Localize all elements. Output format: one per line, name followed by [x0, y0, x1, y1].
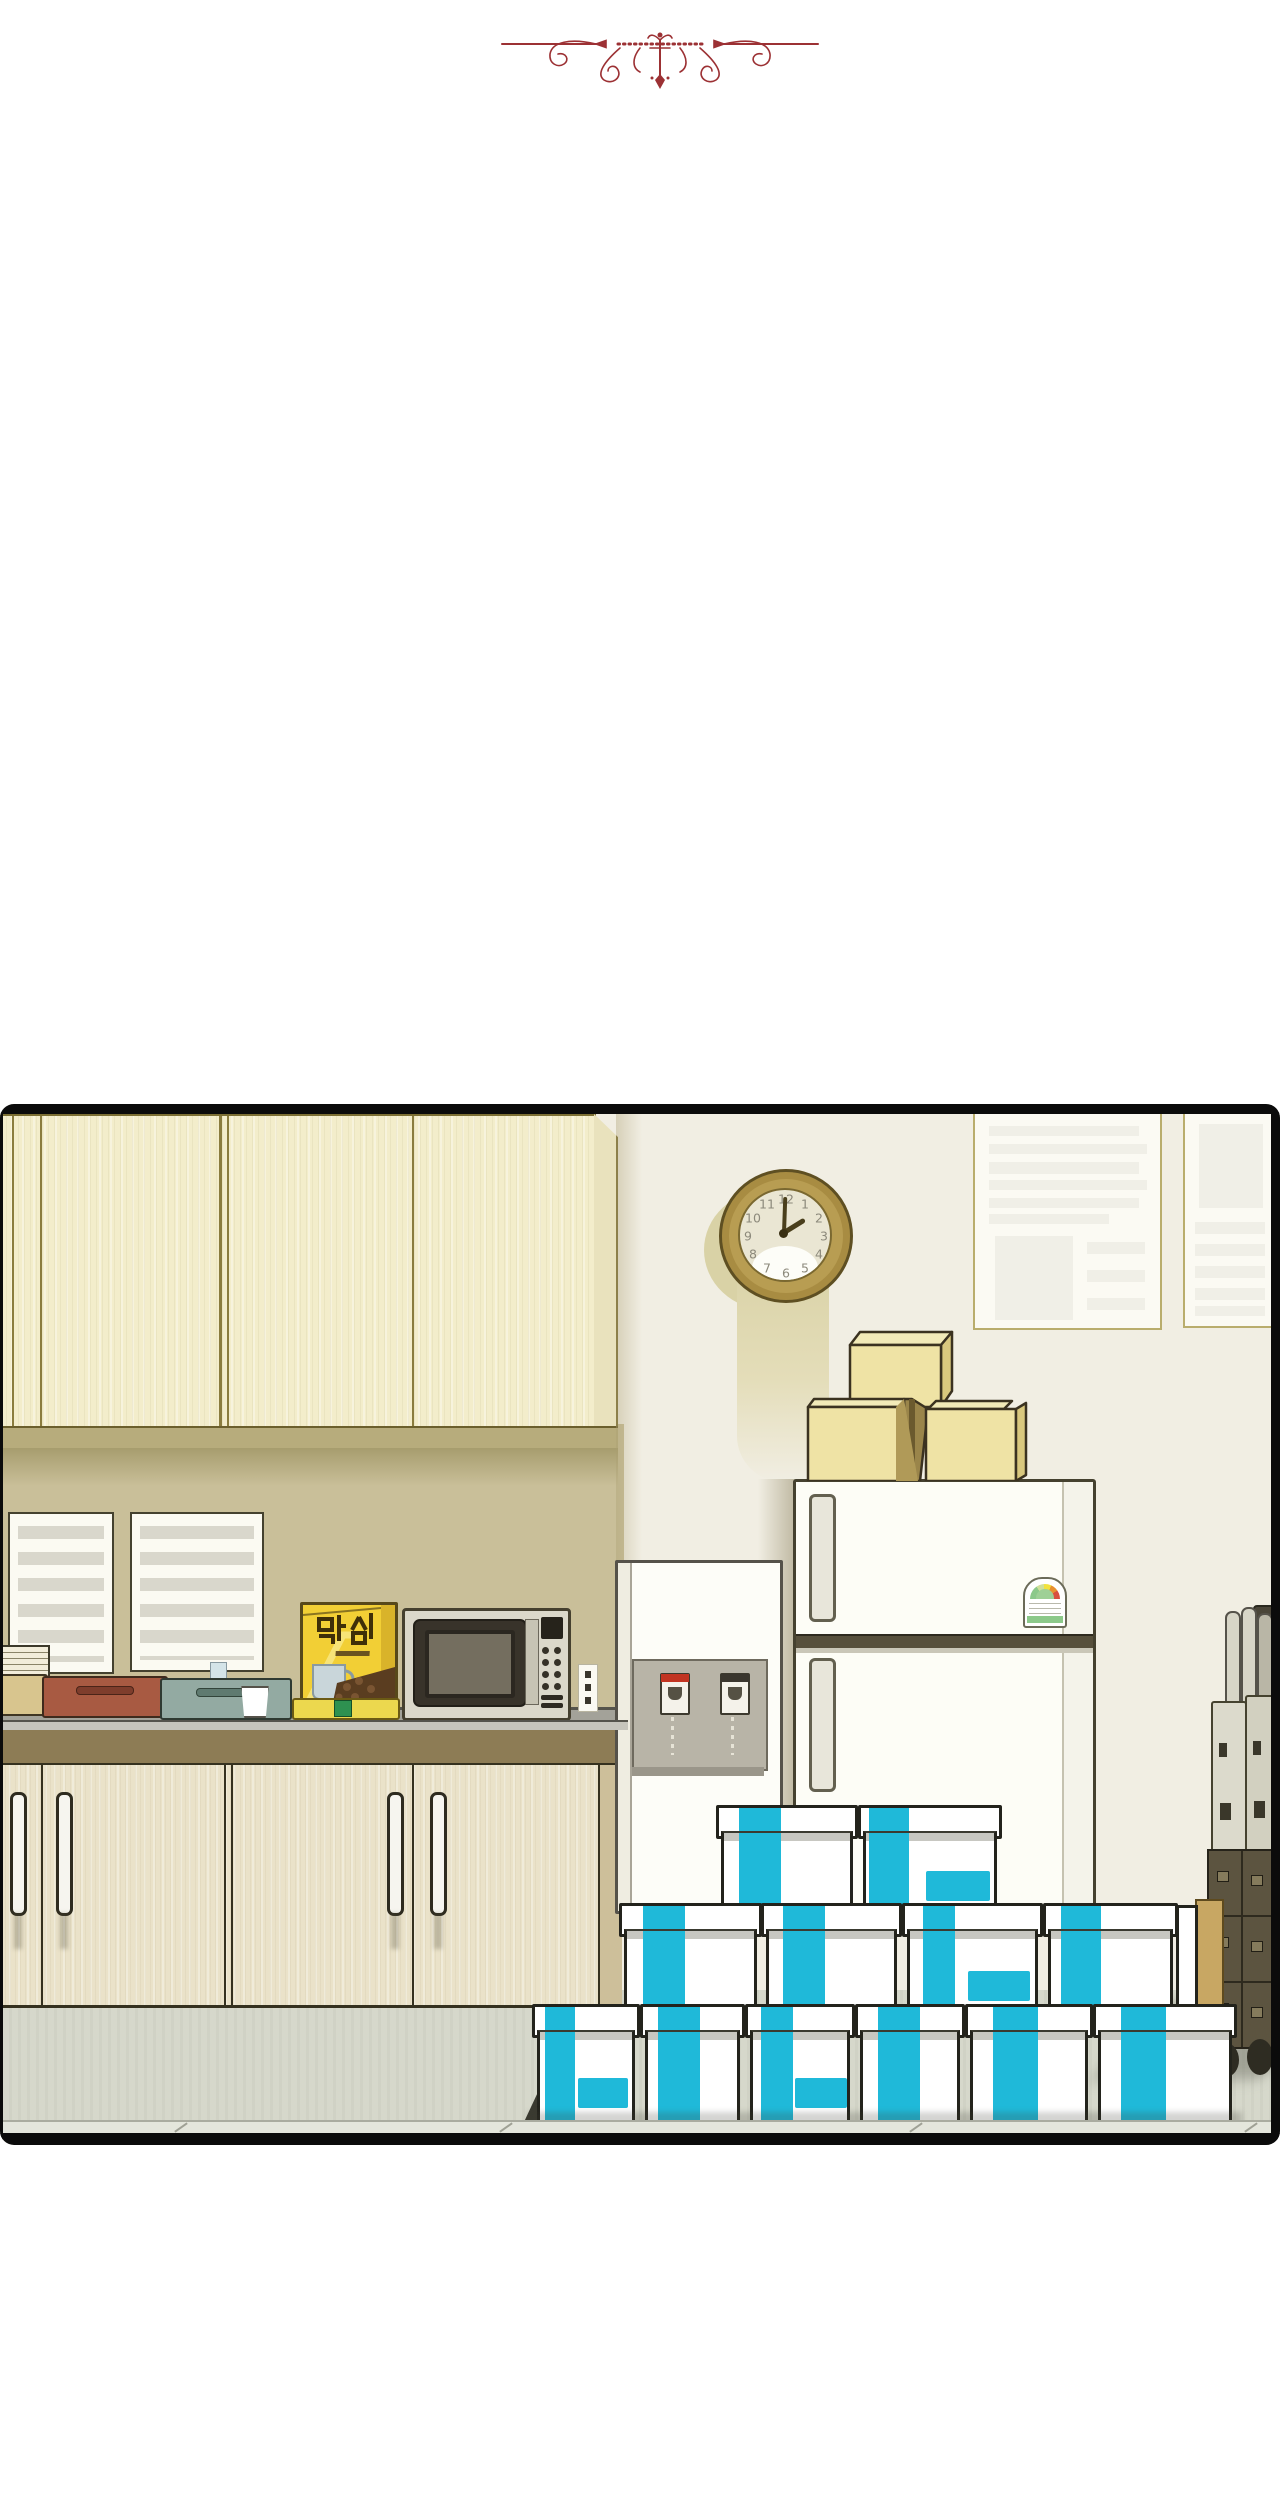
supply-box — [640, 2004, 745, 2123]
cabinet-handle — [387, 1792, 404, 1916]
wall-clock: 12 1 2 3 4 5 6 7 8 9 10 11 — [719, 1169, 853, 1303]
energy-rating-magnet — [1023, 1577, 1067, 1628]
wall-notice-right-2 — [1183, 1112, 1275, 1328]
upper-cabinet-bottom-rail — [0, 1426, 618, 1450]
comic-page: 막심 — [0, 0, 1280, 2500]
supply-box — [619, 1903, 762, 2012]
supply-box — [855, 2004, 965, 2123]
supply-box — [1093, 2004, 1237, 2123]
panel-border-left — [0, 1104, 3, 2145]
serving-tray-tan — [0, 1674, 48, 1716]
supply-box — [761, 1903, 902, 2012]
cardboard-boxes — [800, 1329, 1050, 1481]
microwave-control-panel — [541, 1617, 563, 1709]
water-dispenser-rail — [632, 1767, 764, 1776]
clock-number: 2 — [815, 1211, 823, 1226]
serving-tray-teal — [160, 1678, 292, 1720]
panel-border-top — [0, 1104, 1280, 1114]
cold-water-tap — [720, 1673, 750, 1715]
fridge-handle — [809, 1658, 836, 1792]
counter-front-edge — [0, 1720, 628, 1730]
clock-number: 3 — [820, 1229, 828, 1244]
hot-water-tap — [660, 1673, 690, 1715]
serving-tray-rust — [42, 1676, 168, 1718]
microwave-hinge-strip — [525, 1619, 539, 1705]
cart-wheel — [1247, 2039, 1273, 2075]
coffee-brand-glyphs — [303, 1605, 395, 1711]
clock-number: 7 — [763, 1261, 771, 1276]
microwave-door — [413, 1619, 527, 1707]
supply-box — [858, 1805, 1002, 1912]
lower-cabinets — [0, 1763, 620, 2008]
water-dispenser-panel — [632, 1659, 768, 1771]
clock-number: 4 — [815, 1247, 823, 1262]
coffee-tray-ribbon — [334, 1700, 352, 1717]
wall-notice-right-1 — [973, 1112, 1162, 1330]
supply-box — [1043, 1903, 1178, 2012]
wall-outlet — [578, 1664, 598, 1712]
wall-notice-left-2 — [130, 1512, 264, 1672]
lower-cabinet-rail — [0, 1728, 620, 1764]
clock-number: 6 — [782, 1266, 790, 1281]
clock-number: 5 — [801, 1261, 809, 1276]
under-cabinet-shadow — [0, 1448, 618, 1486]
cabinet-handle — [56, 1792, 73, 1916]
panel-border-bottom — [0, 2133, 1280, 2145]
kitchen-panel: 막심 — [0, 1104, 1280, 2145]
microwave — [402, 1608, 571, 1721]
clock-number: 8 — [749, 1247, 757, 1262]
cabinet-handle — [430, 1792, 447, 1916]
panel-border-right — [1271, 1104, 1280, 2145]
supply-box — [532, 2004, 640, 2123]
paper-cup — [240, 1686, 270, 1718]
supply-box — [745, 2004, 855, 2123]
supply-box — [716, 1805, 858, 1912]
upper-cabinet-side-panel — [594, 1114, 618, 1444]
flourish-divider-ornament — [500, 18, 820, 90]
clock-number: 10 — [745, 1211, 761, 1226]
freezer-handle — [809, 1494, 836, 1622]
folded-panel — [1211, 1701, 1247, 1855]
microwave-window — [425, 1630, 515, 1698]
clock-number: 11 — [759, 1197, 775, 1212]
clock-number: 1 — [801, 1197, 809, 1212]
microwave-display — [541, 1617, 563, 1639]
supply-box — [965, 2004, 1093, 2123]
fridge-door-divider — [796, 1634, 1093, 1648]
supply-box-edge — [1176, 1905, 1198, 2009]
upper-cabinets — [0, 1114, 596, 1430]
supply-box — [902, 1903, 1043, 2012]
water-dispenser-side — [618, 1563, 632, 1911]
clock-number: 9 — [744, 1229, 752, 1244]
cabinet-handle — [10, 1792, 27, 1916]
